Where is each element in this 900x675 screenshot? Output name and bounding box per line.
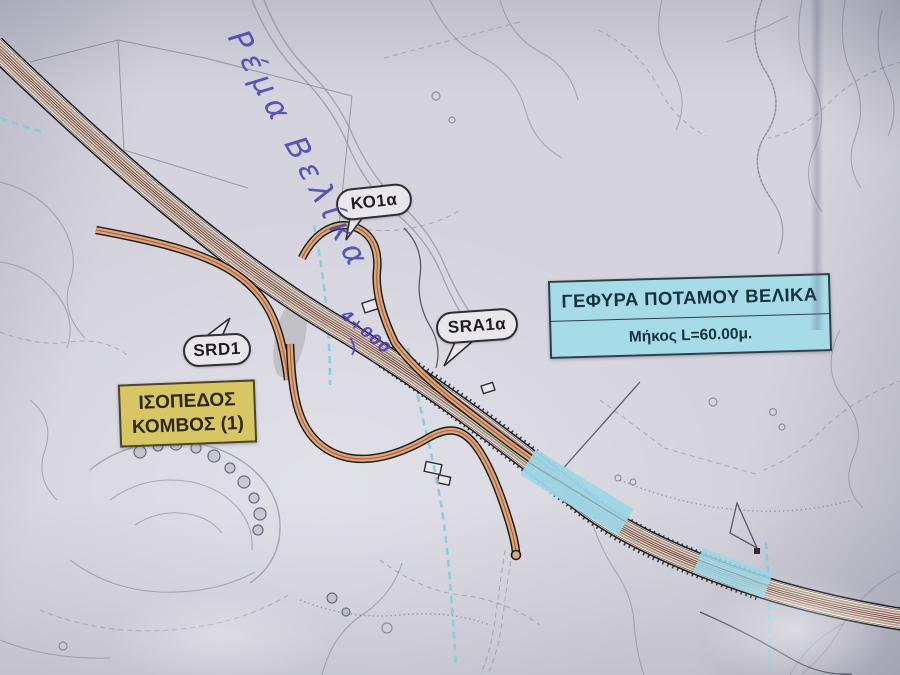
bridge-highlight-60m [528,462,626,522]
ramp-end-cap [512,551,521,560]
callout-sra1a-label: SRA1α [447,314,507,338]
callout-sra1a: SRA1α [435,307,519,345]
glare-spot-2 [110,590,330,675]
callout-ko1a-label: ΚΟ1α [350,190,398,215]
bridge-info-box: ΓΕΦΥΡΑ ΠΟΤΑΜΟΥ ΒΕΛΙΚΑ Μήκος L=60.00μ. [548,273,832,359]
corner-shadow [780,0,900,150]
bridge-length: Μήκος L=60.00μ. [551,314,830,357]
glare-spot [700,575,890,675]
map-photo: ΚΟ1α SRD1 SRA1α ΙΣΟΠΕΔΟΣ ΚΟΜΒΟΣ (1) ΓΕΦΥ… [0,0,900,675]
callout-srd1: SRD1 [182,332,252,368]
junction-label-line2: ΚΟΜΒΟΣ (1) [132,411,245,439]
rock-symbols [134,438,350,616]
callout-srd1-label: SRD1 [193,339,241,361]
junction-label-box: ΙΣΟΠΕΔΟΣ ΚΟΜΒΟΣ (1) [118,379,257,447]
